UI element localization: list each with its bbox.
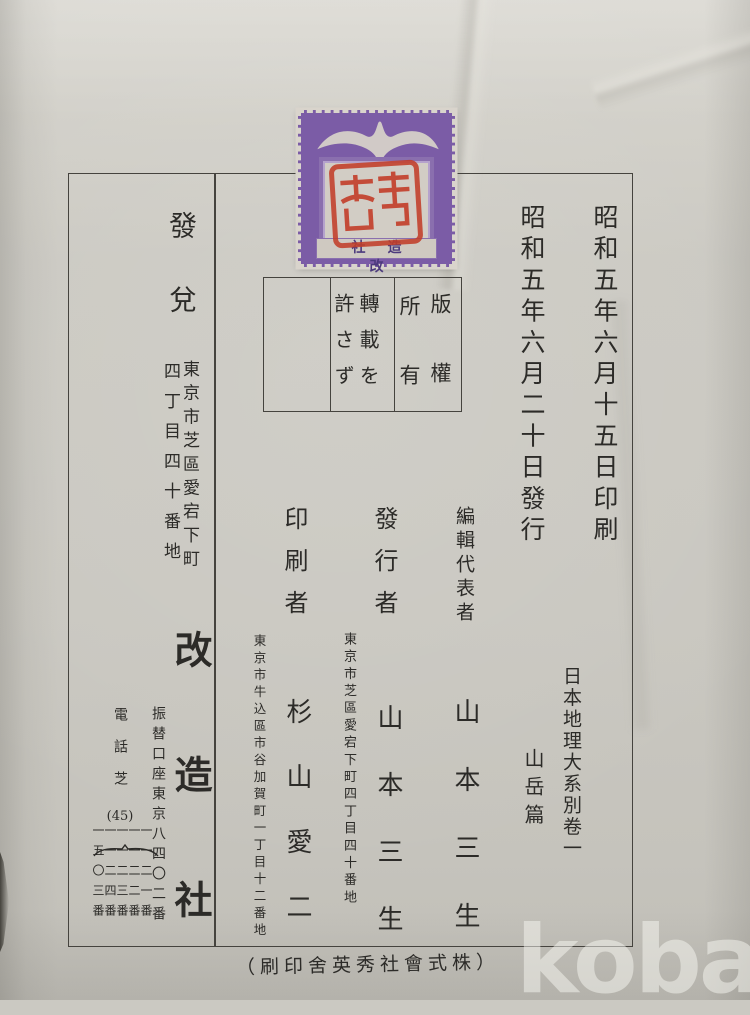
printer-name-column: 杉山愛二: [284, 698, 310, 958]
telephone-number-column-2: 一一二二番: [128, 824, 140, 924]
telephone-exchange: (45): [98, 809, 142, 824]
printing-company-note: （刷印舍英秀社會式株）: [236, 947, 501, 980]
distributor-label-column: 發兌: [167, 211, 195, 359]
rights-shoyu-column: 所有: [398, 295, 419, 433]
watermark: kobay: [516, 906, 750, 1015]
telephone-label-column: 電話芝: [113, 707, 127, 803]
rights-hanken-column: 版權: [429, 293, 450, 431]
printer-label-column: 印刷者: [282, 506, 306, 632]
rights-yurusazu-column: 許さず: [333, 293, 353, 401]
editor-label-column: 編輯代表者: [454, 506, 473, 626]
editor-name-column: 山本三生: [452, 698, 478, 970]
series-title-column: 日本地理大系別卷一: [561, 666, 580, 860]
rights-tensai-column: 轉載を: [358, 293, 378, 401]
postal-account-column: 振替口座東京八四〇二番: [151, 706, 165, 926]
distributor-address-column-1: 東京市芝區愛宕下町: [180, 360, 197, 573]
publisher-address-column: 東京市芝區愛宕下町四丁目四十番地: [342, 632, 355, 907]
series-volume-column: 山岳篇: [523, 748, 543, 832]
telephone-number-column-1: 一一二一番: [140, 824, 152, 924]
publisher-label-column: 發行者: [372, 506, 396, 632]
printer-address-column: 東京市牛込區市谷加賀町一丁目十二番地: [252, 634, 265, 940]
print-date-column: 昭和五年六月十五日印刷: [592, 204, 617, 547]
publish-date-column: 昭和五年六月二十日發行: [519, 204, 544, 547]
paper-crease-top-right: [578, 0, 750, 145]
photo-edge-shadow: [0, 852, 9, 952]
publisher-name-column: 山本三生: [375, 704, 401, 972]
distributor-name-column: 改造社: [171, 630, 209, 1005]
telephone-number-column-3: 一一二三番: [116, 824, 128, 924]
distributor-address-column-2: 四丁目四十番地: [161, 362, 178, 572]
rights-divider-right: [394, 278, 395, 411]
frame-divider: [214, 174, 216, 946]
telephone-number-column-4: 一一二四番: [104, 824, 116, 924]
kaizosha-seal-icon: [329, 159, 424, 248]
telephone-number-column-5: 一五〇三番: [92, 824, 104, 924]
